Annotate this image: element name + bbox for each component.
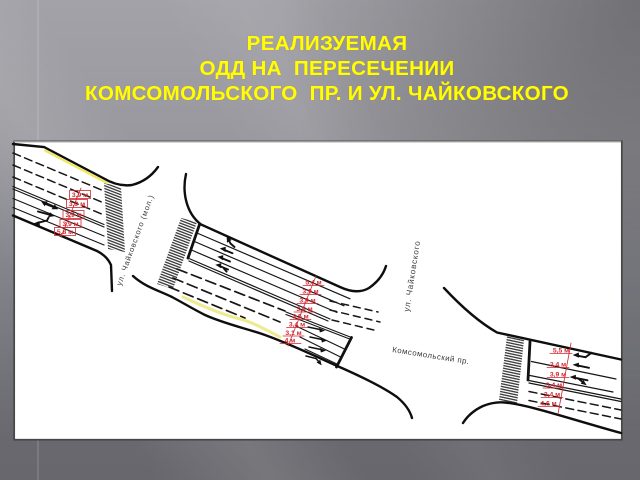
svg-text:3,4 м: 3,4 м <box>550 362 566 369</box>
svg-text:3,1 м: 3,1 м <box>285 330 301 337</box>
svg-text:3,9 м: 3,9 м <box>296 306 312 313</box>
svg-text:3,9 м: 3,9 м <box>72 192 88 199</box>
svg-text:3,5 м: 3,5 м <box>292 314 308 321</box>
svg-text:4 м: 4 м <box>285 338 296 345</box>
svg-text:5,8 м: 5,8 м <box>57 229 73 236</box>
svg-text:3,9 м: 3,9 м <box>69 201 85 208</box>
svg-text:3,9 м: 3,9 м <box>302 289 318 296</box>
svg-text:3,4 м: 3,4 м <box>289 322 305 329</box>
svg-text:5,4 м: 5,4 м <box>305 280 321 287</box>
svg-text:4,6 м: 4,6 м <box>540 401 556 408</box>
svg-text:3,9 м: 3,9 м <box>299 298 315 305</box>
svg-text:3,9 м: 3,9 м <box>62 221 78 228</box>
svg-text:3,9 м: 3,9 м <box>65 212 81 219</box>
svg-text:5,5 м: 5,5 м <box>553 348 569 355</box>
svg-text:3,4 м: 3,4 м <box>546 382 562 389</box>
svg-text:3,4 м: 3,4 м <box>544 392 560 399</box>
svg-text:3,9 м: 3,9 м <box>550 372 566 379</box>
